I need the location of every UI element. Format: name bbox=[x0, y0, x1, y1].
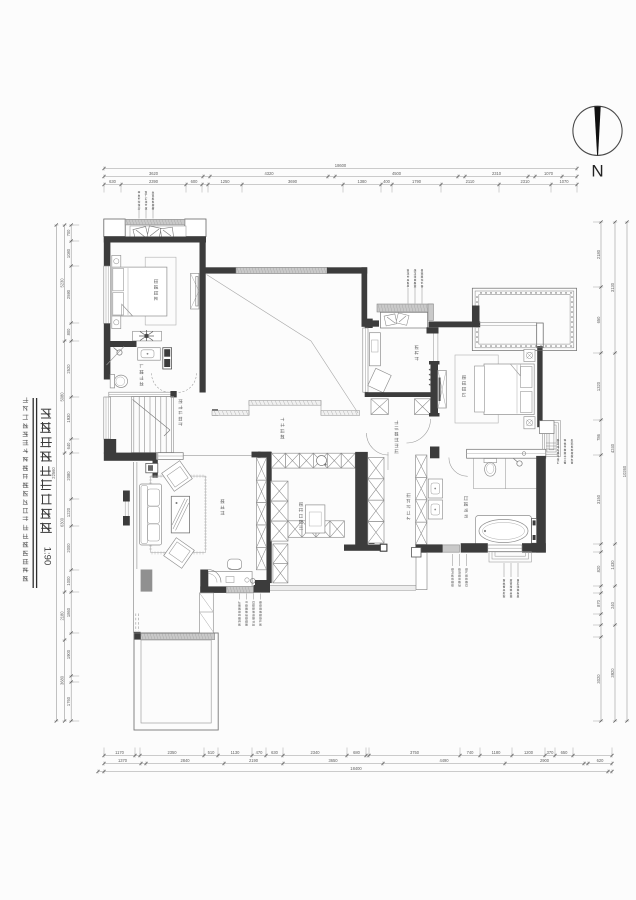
svg-text:700: 700 bbox=[66, 229, 71, 237]
svg-text:650: 650 bbox=[561, 750, 569, 755]
svg-text:5080: 5080 bbox=[59, 392, 64, 402]
svg-text:1080: 1080 bbox=[66, 248, 71, 258]
svg-text:4240: 4240 bbox=[610, 443, 615, 453]
svg-text:650: 650 bbox=[596, 316, 601, 324]
svg-text:870: 870 bbox=[596, 599, 601, 607]
svg-text:1900: 1900 bbox=[66, 649, 71, 659]
svg-text:1860: 1860 bbox=[66, 607, 71, 617]
svg-text:2180: 2180 bbox=[59, 611, 64, 621]
svg-text:10260: 10260 bbox=[622, 465, 627, 477]
svg-text:4320: 4320 bbox=[264, 171, 274, 176]
svg-text:18600: 18600 bbox=[335, 163, 347, 168]
svg-text:1370: 1370 bbox=[118, 758, 128, 763]
svg-text:N: N bbox=[591, 162, 603, 181]
svg-text:1180: 1180 bbox=[492, 750, 502, 755]
svg-text:2310: 2310 bbox=[520, 179, 530, 184]
svg-text:3750: 3750 bbox=[410, 750, 420, 755]
svg-text:2180: 2180 bbox=[596, 249, 601, 259]
svg-text:2310: 2310 bbox=[492, 171, 502, 176]
svg-text:2390: 2390 bbox=[149, 179, 159, 184]
svg-text:2900: 2900 bbox=[540, 758, 550, 763]
svg-text:630: 630 bbox=[109, 179, 117, 184]
svg-text:800: 800 bbox=[66, 328, 71, 336]
svg-text:1170: 1170 bbox=[115, 750, 125, 755]
svg-text:2190: 2190 bbox=[249, 758, 259, 763]
svg-text:1320: 1320 bbox=[596, 381, 601, 391]
svg-text:2520: 2520 bbox=[66, 364, 71, 374]
svg-text:2110: 2110 bbox=[466, 179, 476, 184]
svg-text:1070: 1070 bbox=[544, 171, 554, 176]
svg-text:4500: 4500 bbox=[392, 171, 402, 176]
svg-text:1430: 1430 bbox=[610, 560, 615, 570]
svg-text:1220: 1220 bbox=[66, 507, 71, 517]
svg-text:1070: 1070 bbox=[559, 179, 569, 184]
svg-text:1760: 1760 bbox=[66, 696, 71, 706]
svg-text:1130: 1130 bbox=[231, 750, 241, 755]
svg-text:1000: 1000 bbox=[66, 576, 71, 586]
svg-text:3690: 3690 bbox=[288, 179, 298, 184]
svg-text:22560: 22560 bbox=[51, 467, 56, 479]
svg-text:1930: 1930 bbox=[66, 413, 71, 423]
svg-text:2590: 2590 bbox=[66, 289, 71, 299]
svg-text:3130: 3130 bbox=[610, 282, 615, 292]
svg-text:240: 240 bbox=[610, 601, 615, 609]
svg-text:620: 620 bbox=[597, 758, 605, 763]
svg-text:3020: 3020 bbox=[596, 674, 601, 684]
svg-text:786: 786 bbox=[596, 433, 601, 441]
svg-text:740: 740 bbox=[467, 750, 475, 755]
svg-text:3620: 3620 bbox=[149, 171, 159, 176]
svg-text:3680: 3680 bbox=[59, 675, 64, 685]
svg-text:820: 820 bbox=[596, 565, 601, 573]
svg-text:1250: 1250 bbox=[220, 179, 230, 184]
svg-text:2340: 2340 bbox=[310, 750, 320, 755]
svg-text:680: 680 bbox=[353, 750, 361, 755]
svg-text:3650: 3650 bbox=[328, 758, 338, 763]
svg-text:640: 640 bbox=[66, 442, 71, 450]
svg-text:3150: 3150 bbox=[596, 494, 601, 504]
svg-text:2840: 2840 bbox=[180, 758, 190, 763]
svg-text:600: 600 bbox=[191, 179, 199, 184]
svg-text:370: 370 bbox=[547, 750, 555, 755]
svg-text:18400: 18400 bbox=[350, 766, 362, 771]
svg-text:510: 510 bbox=[208, 750, 216, 755]
svg-text:630: 630 bbox=[271, 750, 279, 755]
svg-text:2000: 2000 bbox=[66, 543, 71, 553]
svg-text:6300: 6300 bbox=[59, 517, 64, 527]
svg-text:1:90: 1:90 bbox=[42, 547, 53, 566]
svg-text:2080: 2080 bbox=[66, 471, 71, 481]
svg-text:1200: 1200 bbox=[524, 750, 534, 755]
svg-text:5230: 5230 bbox=[59, 278, 64, 288]
svg-text:1380: 1380 bbox=[357, 179, 367, 184]
svg-text:400: 400 bbox=[383, 179, 391, 184]
svg-text:4490: 4490 bbox=[439, 758, 449, 763]
svg-text:470: 470 bbox=[256, 750, 264, 755]
svg-text:3920: 3920 bbox=[610, 668, 615, 678]
svg-text:1790: 1790 bbox=[412, 179, 422, 184]
svg-text:2350: 2350 bbox=[167, 750, 177, 755]
